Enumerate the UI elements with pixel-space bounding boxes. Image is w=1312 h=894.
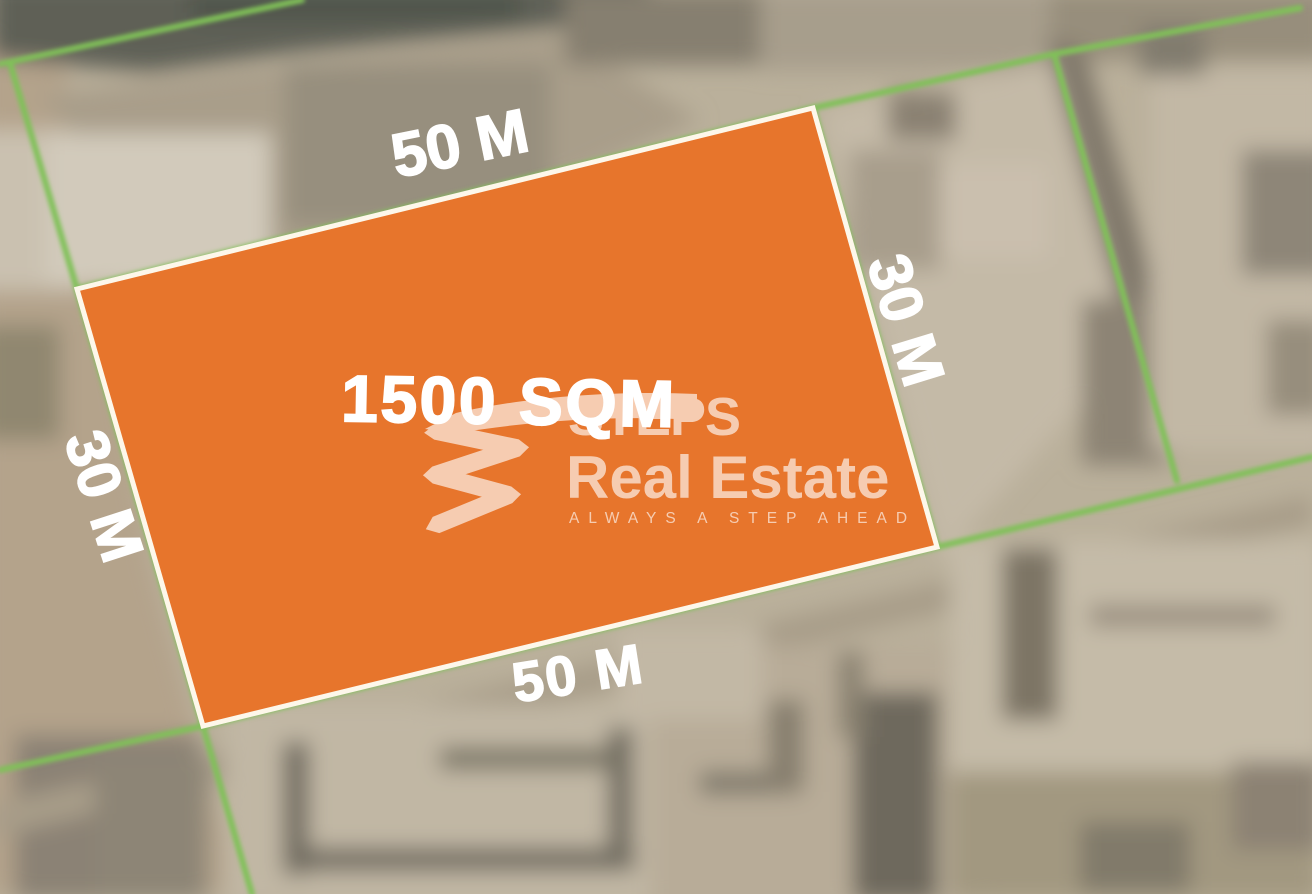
svg-text:STEPS: STEPS bbox=[568, 387, 740, 447]
svg-text:Real Estate: Real Estate bbox=[566, 444, 890, 511]
svg-text:ALWAYS A STEP AHEAD: ALWAYS A STEP AHEAD bbox=[569, 510, 916, 527]
